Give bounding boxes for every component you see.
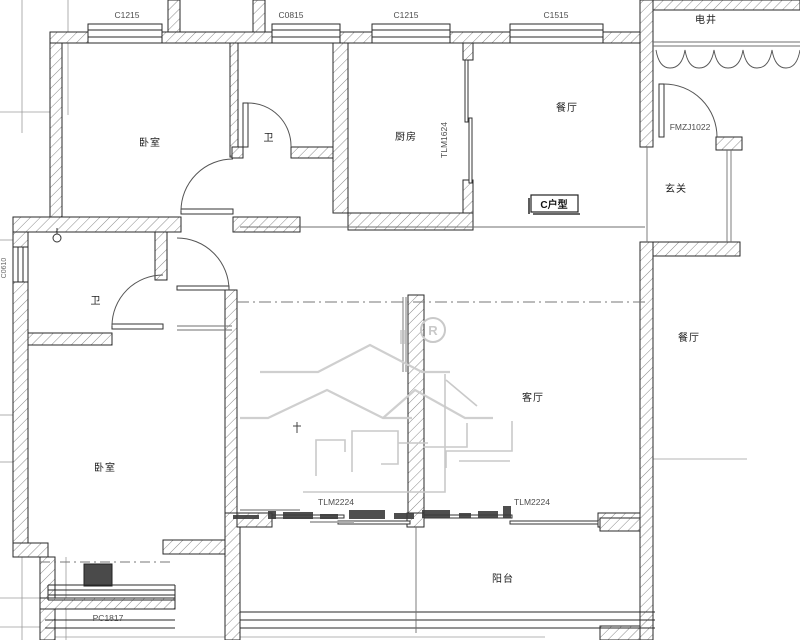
floorplan-drawing: C户型 R 卧室 卫 <box>0 0 800 640</box>
room-label-dining-right: 餐厅 <box>678 331 700 344</box>
room-label-shaft: 电井 <box>695 13 717 26</box>
door-code-balcony-left: TLM2224 <box>318 497 354 507</box>
window-c0610 <box>13 247 28 282</box>
door-code-entrance: FMZJ1022 <box>670 122 711 132</box>
window-code-c1515: C1515 <box>543 10 568 20</box>
window-code-pc1817: PC1817 <box>93 613 124 623</box>
window-c1215-b <box>372 24 450 43</box>
window-c1515 <box>510 24 603 43</box>
door-code-balcony-right: TLM2224 <box>514 497 550 507</box>
room-label-dining-top: 餐厅 <box>556 101 578 114</box>
structural-pier <box>84 564 112 586</box>
room-label-entry: 玄关 <box>665 182 687 195</box>
room-label-balcony: 阳台 <box>492 572 514 585</box>
window-code-c1215-a: C1215 <box>114 10 139 20</box>
window-code-c1215-b: C1215 <box>393 10 418 20</box>
room-label-bath-top: 卫 <box>264 133 275 144</box>
window-c0815 <box>272 24 340 43</box>
window-code-c0815: C0815 <box>278 10 303 20</box>
paper-background <box>0 0 800 640</box>
room-label-living: 客厅 <box>522 391 544 404</box>
room-label-kitchen: 厨房 <box>395 130 417 143</box>
room-label-bedroom-top: 卧室 <box>139 136 161 149</box>
door-code-kitchen-sliding: TLM1624 <box>439 122 449 158</box>
unit-tag-label: C户型 <box>540 198 567 211</box>
floorplan-canvas: C户型 R 卧室 卫 <box>0 0 800 640</box>
room-label-bath-mid: 卫 <box>91 296 102 307</box>
room-label-bedroom-bottom: 卧室 <box>94 461 116 474</box>
window-code-c0610: C0610 <box>1 258 8 279</box>
unit-tag-box: C户型 <box>529 195 580 214</box>
registered-letter: R <box>428 323 438 338</box>
window-c1215-a <box>88 24 162 43</box>
